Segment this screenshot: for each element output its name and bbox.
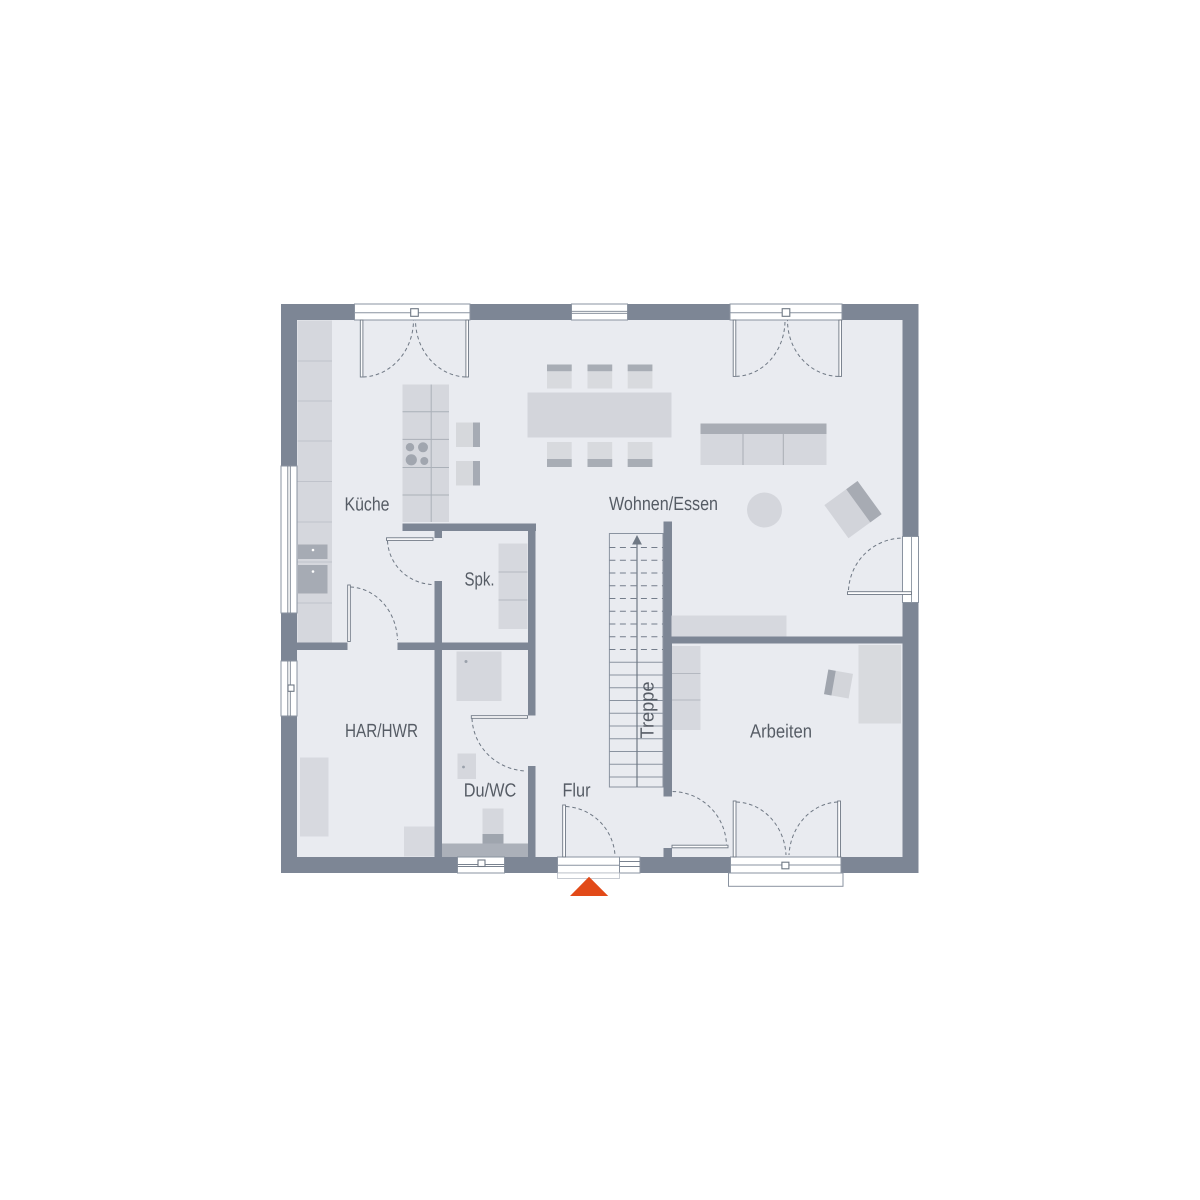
- svg-text:Du/WC: Du/WC: [464, 781, 517, 802]
- svg-text:HAR/HWR: HAR/HWR: [345, 721, 418, 742]
- svg-text:Arbeiten: Arbeiten: [750, 722, 812, 743]
- svg-text:Wohnen/Essen: Wohnen/Essen: [609, 494, 718, 515]
- svg-text:Küche: Küche: [345, 495, 390, 516]
- svg-text:Flur: Flur: [563, 781, 592, 802]
- svg-text:Treppe: Treppe: [638, 682, 659, 739]
- svg-text:Spk.: Spk.: [465, 570, 495, 591]
